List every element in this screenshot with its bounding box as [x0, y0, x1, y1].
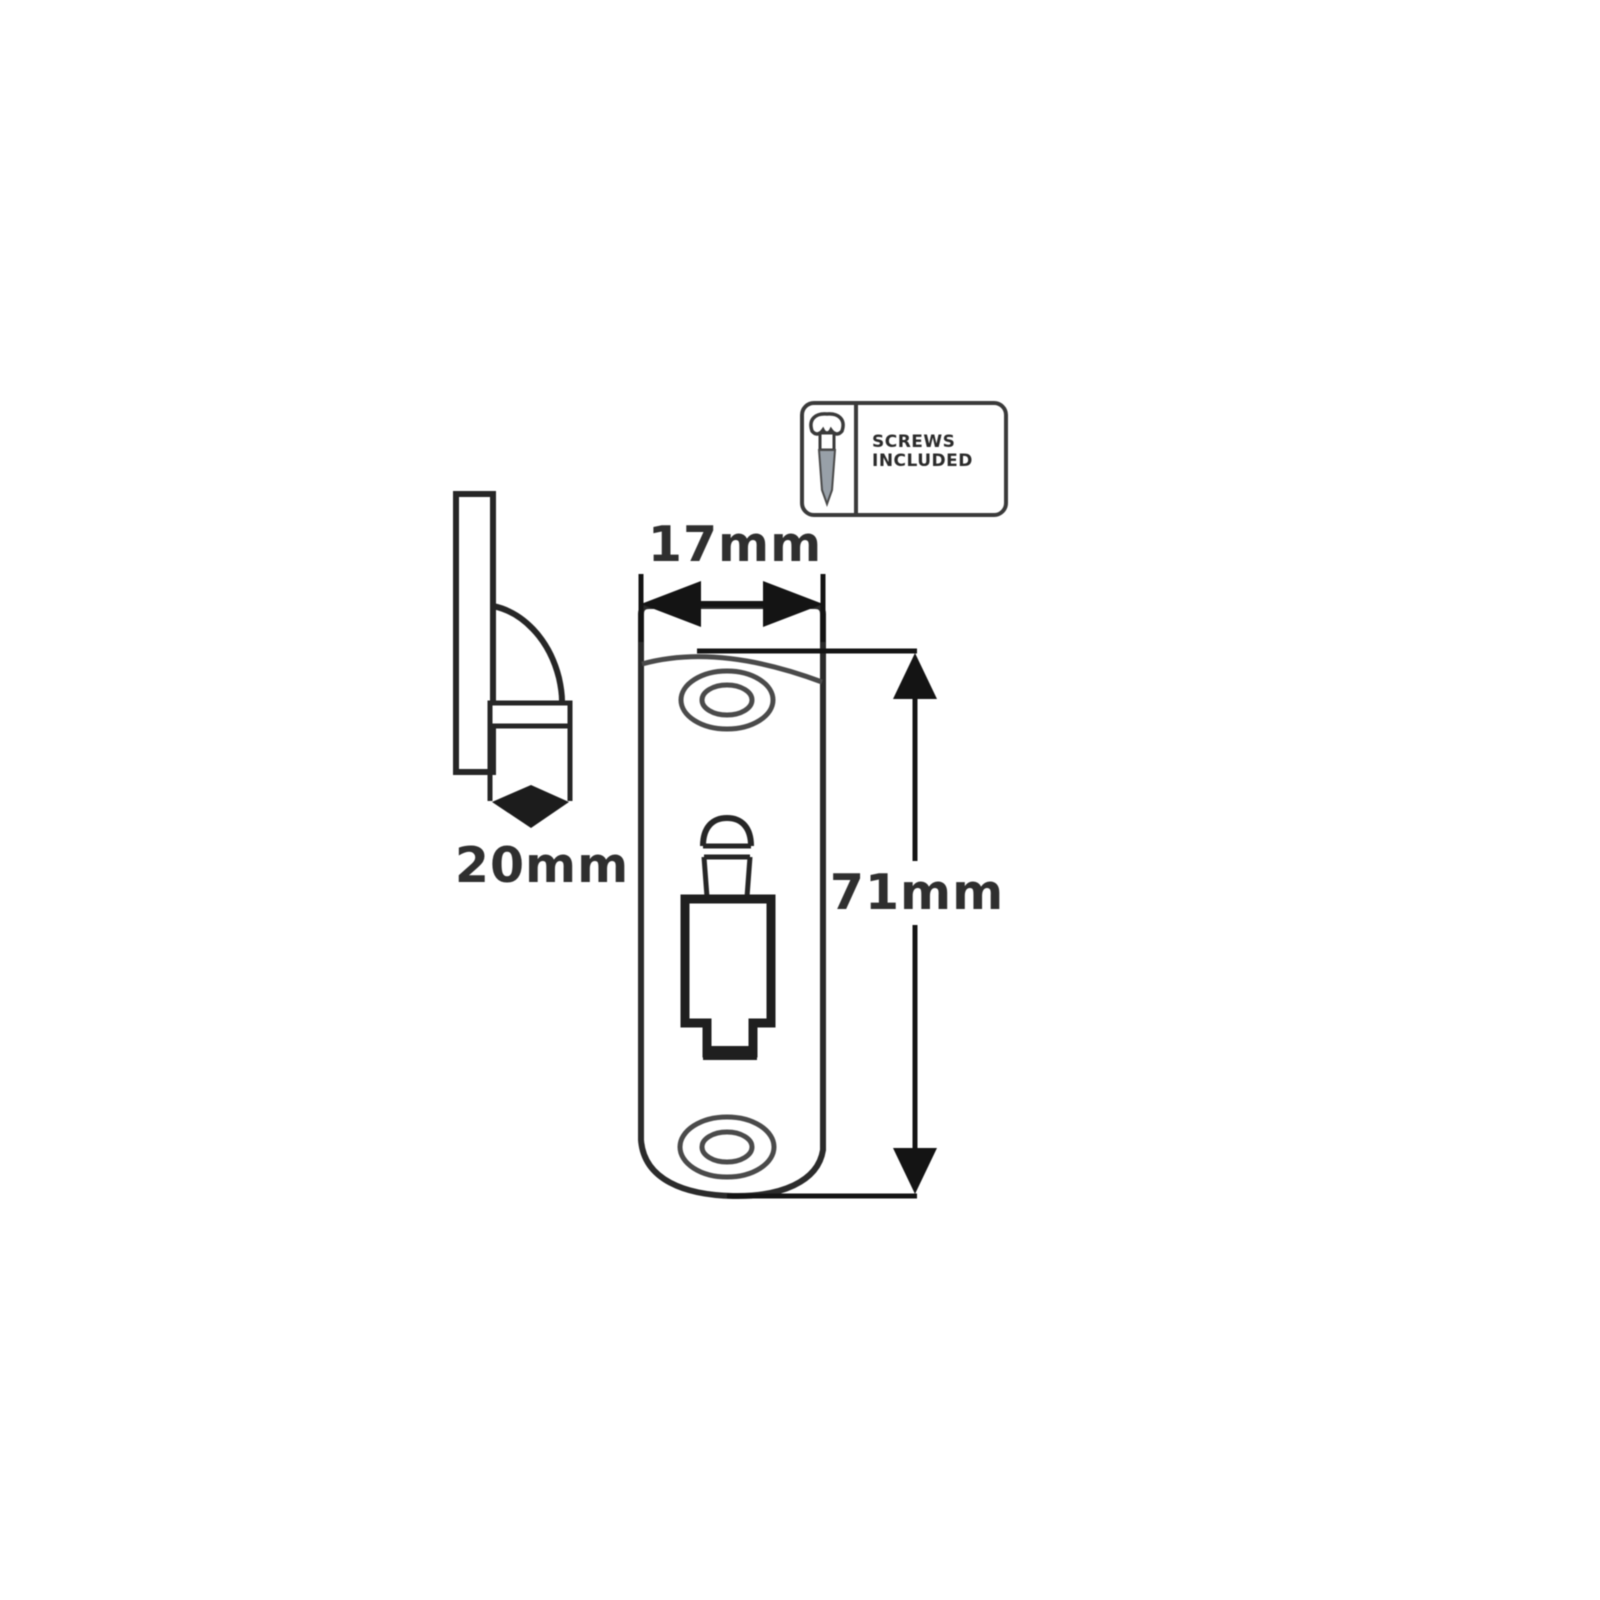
side-collar-band	[490, 703, 570, 726]
bolt-pin-right-side	[747, 857, 750, 897]
side-bolt-tip-diamond	[492, 785, 569, 828]
screw-neck	[820, 433, 834, 450]
bolt-pin-left-side	[704, 857, 707, 897]
screws-included-badge: SCREWS INCLUDED	[802, 403, 1006, 515]
bolt-pin-dome	[703, 818, 751, 846]
height-dimension-label: 71mm	[830, 864, 1004, 921]
depth-dimension-label: 20mm	[455, 837, 629, 894]
side-hook-curve	[493, 606, 562, 701]
technical-diagram: 20mm	[0, 0, 1600, 1600]
height-dim-arrowhead-bottom	[893, 1148, 937, 1194]
side-profile-view	[456, 494, 570, 828]
side-plate-edge	[456, 494, 493, 772]
badge-text-line1: SCREWS	[872, 432, 955, 452]
badge-text-line2: INCLUDED	[872, 451, 973, 471]
screw-head	[811, 414, 843, 434]
height-dim-arrowhead-top	[893, 653, 937, 699]
diagram-canvas: 20mm	[0, 0, 1600, 1600]
width-dimension-label: 17mm	[648, 516, 822, 573]
front-view	[641, 606, 823, 1196]
